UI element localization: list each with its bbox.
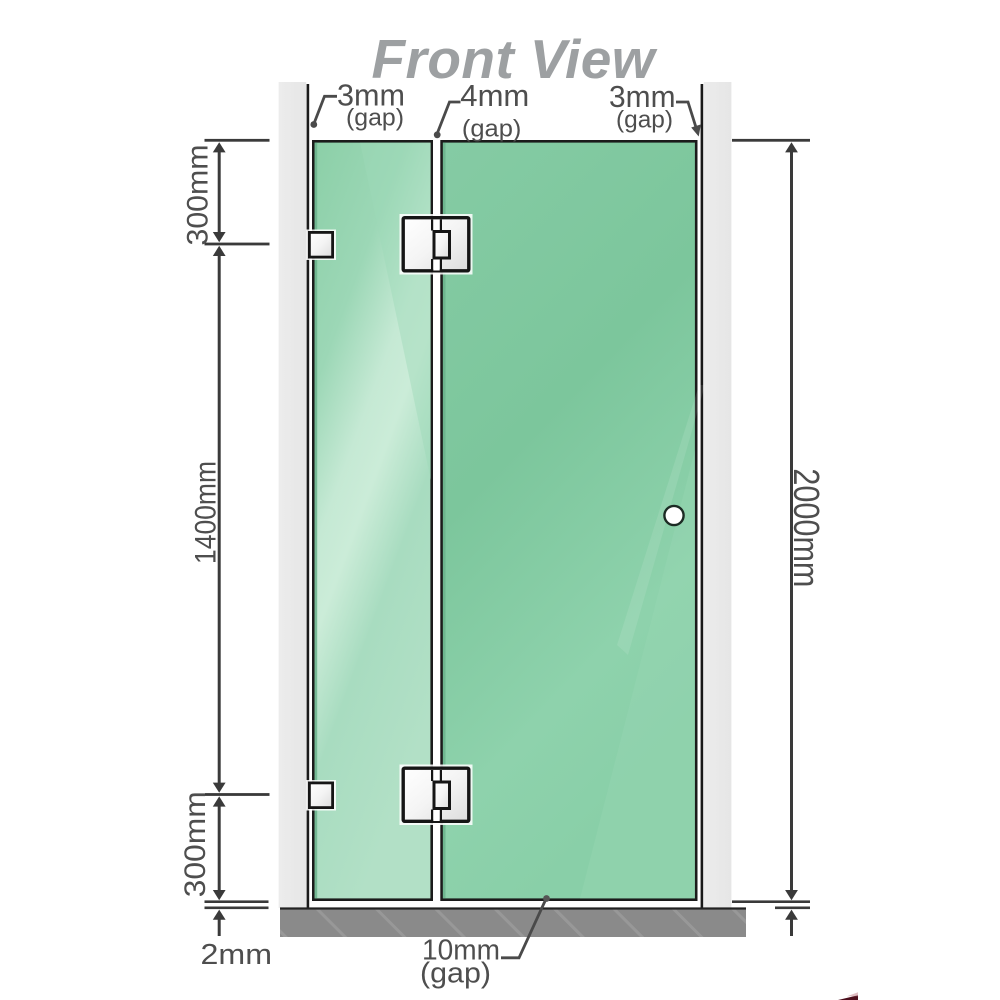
svg-text:(gap): (gap) <box>616 106 673 133</box>
svg-text:2mm: 2mm <box>201 939 273 971</box>
svg-text:(gap): (gap) <box>420 958 491 990</box>
svg-text:(gap): (gap) <box>346 105 404 132</box>
svg-text:4mm: 4mm <box>460 79 529 113</box>
svg-text:(gap): (gap) <box>462 116 521 143</box>
svg-text:300mm: 300mm <box>182 145 215 246</box>
svg-text:300mm: 300mm <box>179 791 212 897</box>
svg-text:2000mm: 2000mm <box>786 468 827 587</box>
svg-text:1400mm: 1400mm <box>190 461 223 564</box>
